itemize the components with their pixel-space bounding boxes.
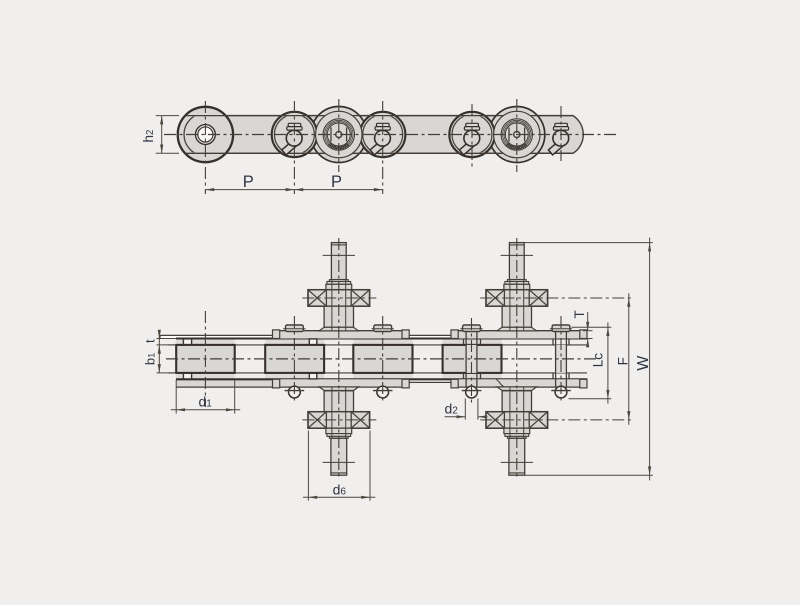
svg-text:F: F [615, 357, 630, 365]
svg-text:P: P [243, 173, 254, 191]
svg-text:t: t [143, 339, 158, 343]
svg-text:b1: b1 [143, 353, 158, 365]
svg-text:P: P [331, 173, 342, 191]
svg-text:T: T [572, 310, 587, 318]
svg-text:Lc: Lc [591, 353, 606, 368]
svg-text:W: W [635, 355, 652, 371]
